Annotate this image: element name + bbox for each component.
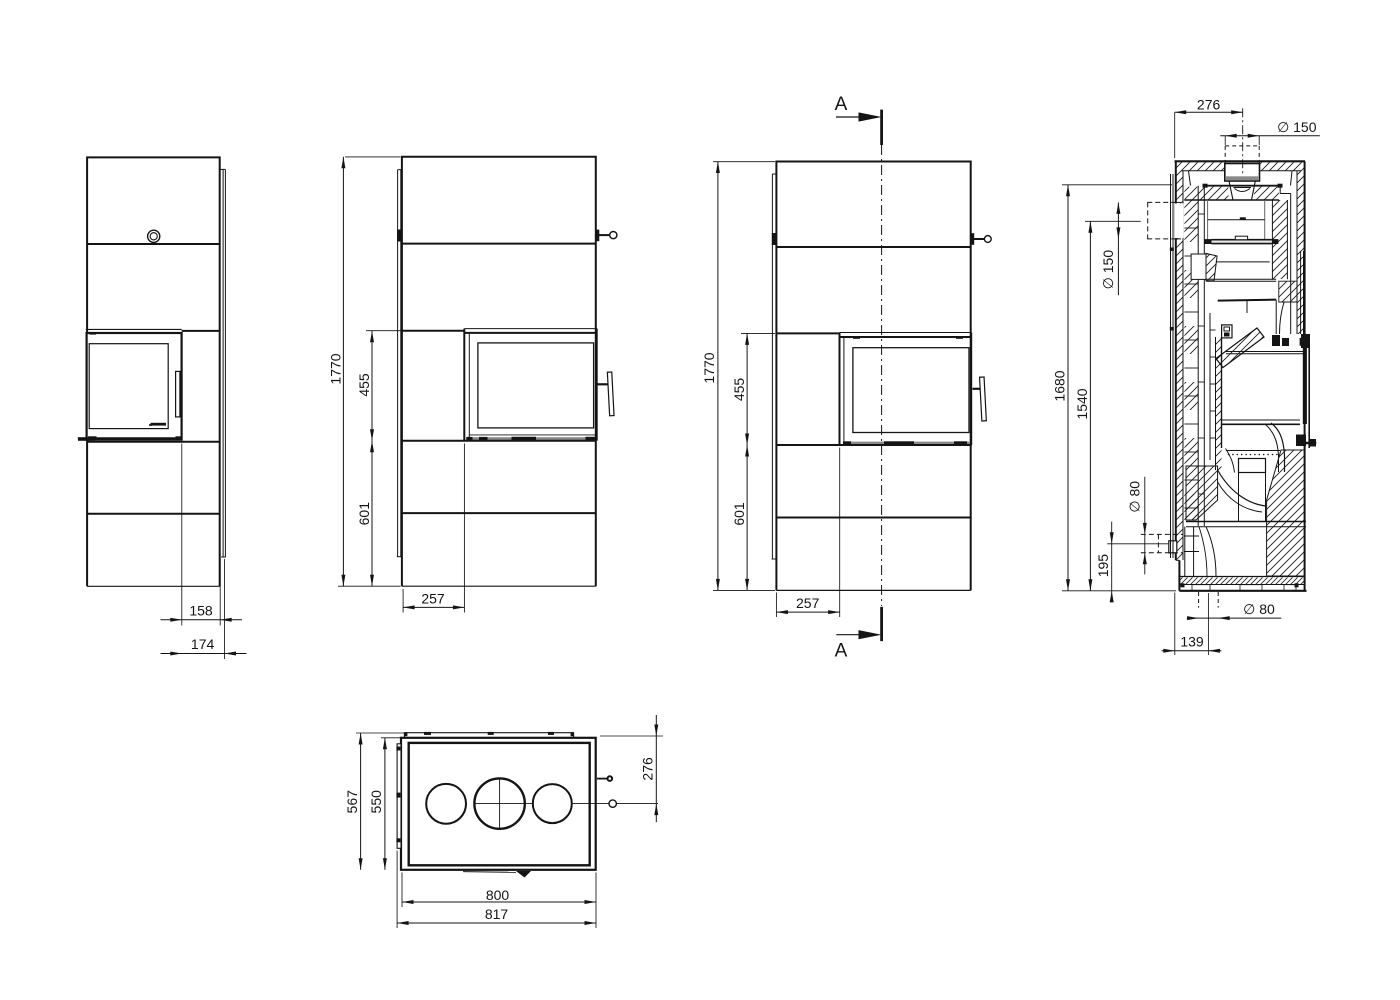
svg-text:158: 158 (189, 603, 213, 619)
svg-text:∅ 150: ∅ 150 (1277, 119, 1317, 135)
svg-text:817: 817 (485, 906, 509, 922)
svg-text:276: 276 (640, 757, 656, 781)
svg-text:257: 257 (796, 595, 820, 611)
svg-text:1540: 1540 (1074, 388, 1090, 419)
svg-text:195: 195 (1095, 554, 1111, 578)
svg-text:A: A (835, 641, 848, 662)
svg-text:567: 567 (344, 790, 360, 814)
svg-text:A: A (835, 94, 848, 115)
svg-text:∅ 150: ∅ 150 (1100, 250, 1116, 290)
svg-text:1770: 1770 (701, 352, 717, 383)
svg-text:1680: 1680 (1051, 370, 1067, 401)
svg-text:455: 455 (731, 378, 747, 402)
svg-text:257: 257 (421, 591, 445, 607)
svg-text:139: 139 (1180, 633, 1204, 649)
svg-text:601: 601 (356, 502, 372, 526)
svg-text:∅ 80: ∅ 80 (1126, 481, 1142, 513)
svg-text:∅ 80: ∅ 80 (1243, 601, 1275, 617)
svg-text:800: 800 (486, 887, 510, 903)
svg-text:1770: 1770 (327, 353, 343, 384)
svg-text:601: 601 (731, 502, 747, 526)
svg-text:174: 174 (191, 636, 215, 652)
svg-text:276: 276 (1197, 96, 1221, 112)
svg-text:455: 455 (356, 373, 372, 397)
svg-text:550: 550 (368, 790, 384, 814)
